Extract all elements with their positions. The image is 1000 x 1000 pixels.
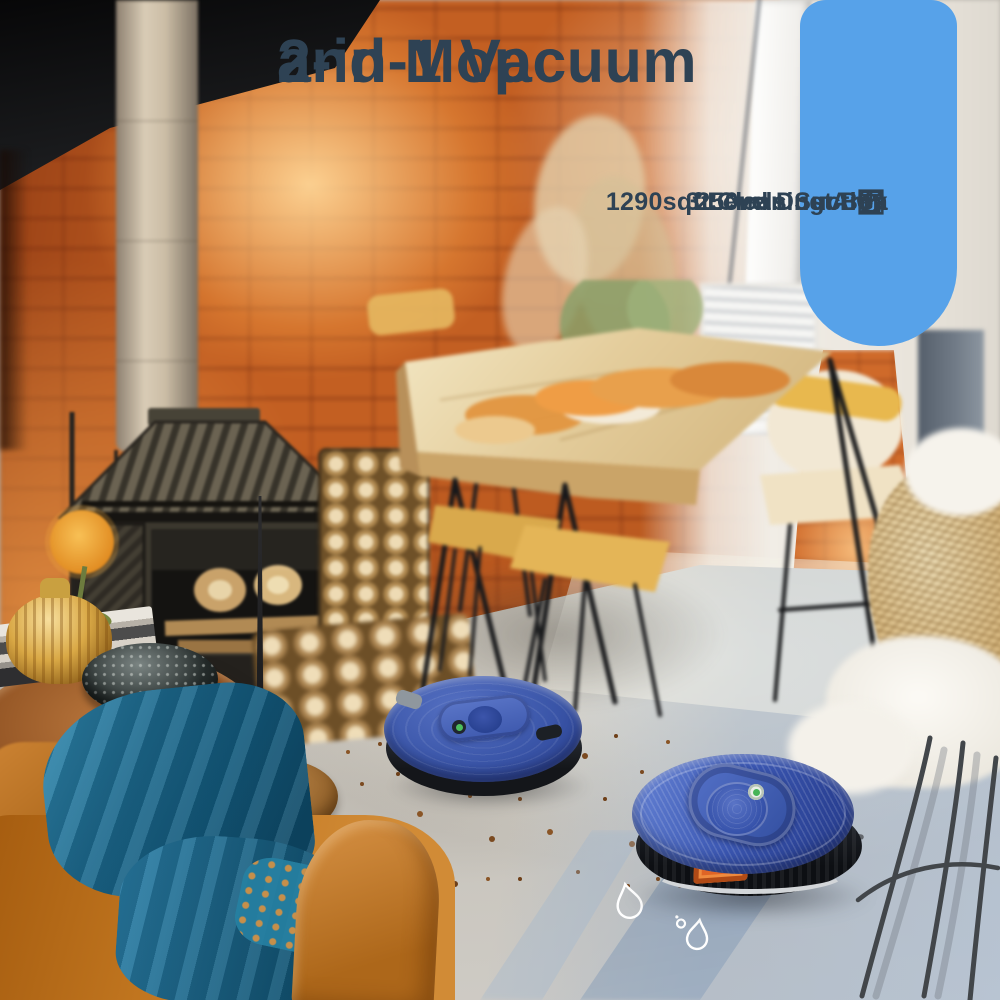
robot-center-disc <box>468 706 502 733</box>
robot-power-button <box>452 720 466 734</box>
headline-line2: and Mop <box>277 26 531 96</box>
cleaning-area-icon <box>854 185 888 219</box>
water-droplet-outline-small <box>671 915 710 950</box>
robot-power-button <box>748 784 764 800</box>
chair-metal-legs <box>828 718 1000 1000</box>
wall-shadow <box>0 150 28 450</box>
product-marketing-image: 2-in-1 Vacuum and Mop 250ml Dust Box 3 L… <box>0 0 1000 1000</box>
scattered-debris <box>378 742 382 746</box>
feature-label: 1290sqft Cleaning Area <box>606 188 888 217</box>
stove-chimney-pipe <box>116 0 198 452</box>
protea-flower <box>50 510 114 574</box>
blue-accent-capsule <box>800 0 957 346</box>
